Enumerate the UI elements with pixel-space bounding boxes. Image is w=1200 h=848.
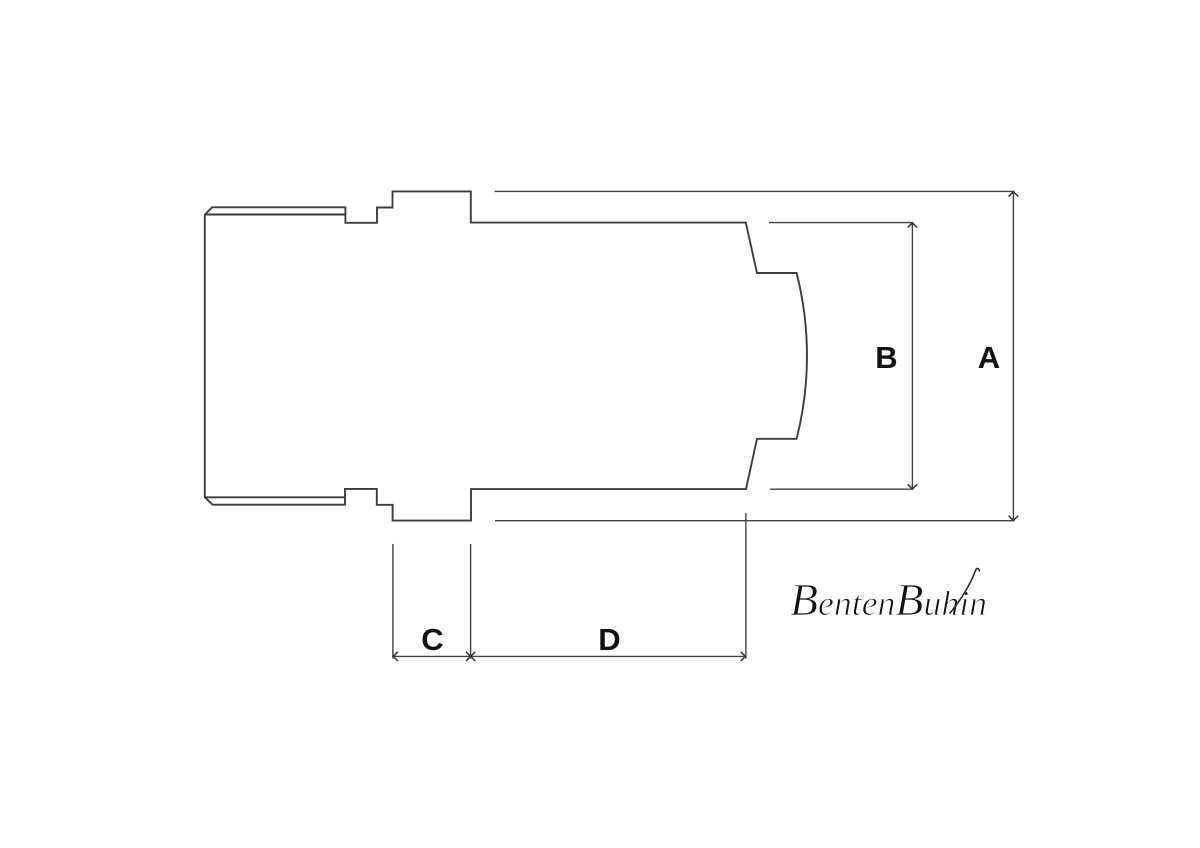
svg-text:D: D (598, 622, 620, 657)
svg-text:B: B (875, 340, 897, 375)
svg-text:C: C (421, 622, 443, 657)
svg-text:BentenBuhin: BentenBuhin (790, 575, 987, 625)
svg-text:A: A (978, 340, 1000, 375)
